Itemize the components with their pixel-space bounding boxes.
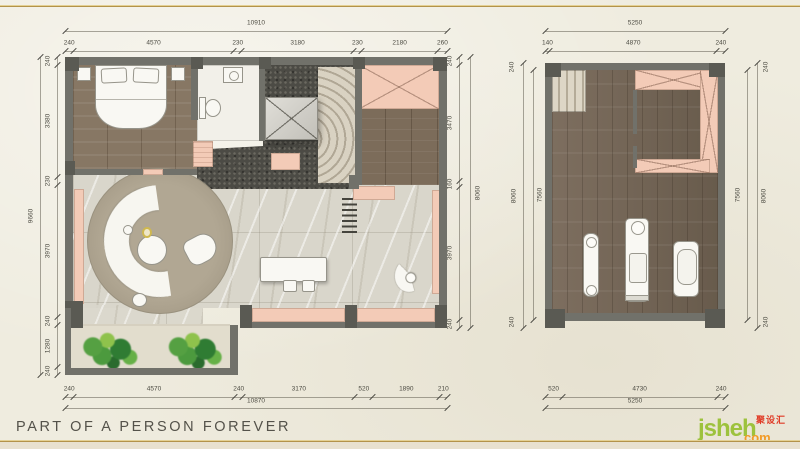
column-b2 (345, 305, 357, 328)
dim-tick (744, 67, 750, 73)
garden-wall-left (65, 308, 71, 375)
wall-bedroom-bottom-a (73, 169, 143, 175)
dim-tick (54, 182, 60, 188)
dim-tick (542, 48, 548, 54)
dim-tick (231, 394, 237, 400)
loft-closet-wall-b (633, 146, 637, 168)
loft-wall-bottom (563, 313, 707, 321)
dim-label: 240 (447, 56, 454, 67)
gold-rule-top (0, 5, 800, 7)
gym-bench-knob-bottom (586, 285, 597, 296)
skylight-shaft (265, 97, 318, 140)
dim-tick (62, 48, 68, 54)
decor-ball (123, 225, 133, 235)
nightstand-left (77, 67, 91, 81)
loft-floor-plan (545, 63, 725, 328)
dim-tick (722, 48, 728, 54)
dim-label: 240 (45, 366, 52, 377)
dim-tick (54, 372, 60, 378)
dim-label: 4870 (626, 40, 640, 47)
garden-threshold (71, 324, 230, 326)
loft-column-bl (545, 309, 565, 328)
floorplan-sheet: 1091024045702303180230218026024045702403… (0, 0, 800, 449)
dim-tick (62, 405, 68, 411)
garden-wall-bottom (65, 368, 238, 375)
dim-tick (722, 28, 728, 34)
loft-wall-right (718, 63, 725, 321)
wall-bottom (240, 322, 447, 328)
dining-chair-left (283, 280, 297, 292)
dim-label: 240 (233, 386, 244, 393)
dim-label: 230 (232, 40, 243, 47)
dim-label: 5250 (628, 20, 642, 27)
dim-label: 240 (64, 386, 75, 393)
dim-tick (467, 54, 473, 60)
dim-label: 3180 (290, 40, 304, 47)
dim-tick (444, 28, 450, 34)
dim-tick (559, 394, 565, 400)
dim-label: 140 (542, 40, 553, 47)
loft-closet-wall-a (633, 90, 637, 134)
dim-label: 5250 (628, 398, 642, 405)
dim-label: 240 (447, 319, 454, 330)
dim-label: 240 (509, 317, 516, 328)
sink-basin (229, 71, 239, 81)
gym-machine-headrest (631, 221, 645, 235)
side-table-gold (142, 227, 152, 238)
dim-tick (456, 184, 462, 190)
dim-tick (542, 394, 548, 400)
dim-label: 2180 (392, 40, 406, 47)
dim-tick (54, 62, 60, 68)
dim-label: 520 (358, 386, 369, 393)
nightstand-right (171, 67, 185, 81)
dim-tick (70, 48, 76, 54)
dim-tick (370, 394, 376, 400)
dim-tick (444, 405, 450, 411)
dim-label: 3970 (447, 246, 454, 260)
dim-label: 1890 (399, 386, 413, 393)
toilet-bowl (205, 99, 221, 117)
main-floor-plan (65, 57, 447, 375)
dim-line (65, 51, 447, 52)
wall-left (65, 57, 73, 308)
curved-staircase (318, 67, 357, 183)
wall-stub-ladder (349, 175, 359, 189)
dim-tick (456, 178, 462, 184)
bottom-cabinet-left (252, 308, 345, 322)
loft-ladder-steps (342, 198, 357, 233)
column-tr (433, 57, 447, 71)
dining-table (260, 257, 327, 282)
footer-slogan: PART OF A PERSON FOREVER (16, 419, 291, 435)
blanket-fold-line (96, 99, 166, 100)
dim-label: 3380 (45, 114, 52, 128)
wall-top (65, 57, 447, 65)
dim-tick (456, 325, 462, 331)
dim-tick (542, 28, 548, 34)
dim-tick (54, 313, 60, 319)
dim-line (65, 408, 447, 409)
dim-label: 1280 (45, 339, 52, 353)
dim-label: 260 (437, 40, 448, 47)
dim-tick (456, 62, 462, 68)
wall-bath-stair (259, 65, 265, 141)
dim-label: 8060 (475, 185, 482, 199)
dim-label: 160 (447, 179, 454, 190)
wall-stair-study (355, 65, 362, 185)
dim-tick (37, 372, 43, 378)
bottom-cabinet-right (357, 308, 435, 322)
dim-tick (54, 174, 60, 180)
column-br (435, 305, 447, 328)
dim-line (757, 63, 758, 328)
round-coffee-table (137, 235, 167, 265)
skylight-cross-lines (266, 98, 317, 139)
dim-tick (54, 364, 60, 370)
dim-tick (54, 321, 60, 327)
gym-recliner-pad (677, 249, 697, 285)
dim-line (470, 57, 471, 328)
column-tl (65, 57, 79, 71)
left-wall-cabinet (74, 189, 84, 304)
dim-label: 230 (352, 40, 363, 47)
dim-tick (722, 394, 728, 400)
dim-line (545, 31, 725, 32)
dim-label: 7560 (537, 188, 544, 202)
pouf (132, 293, 147, 307)
loft-column-br (705, 309, 725, 328)
wall-bedroom-bottom-b (163, 169, 197, 175)
dim-line (459, 57, 460, 328)
wall-right (439, 57, 447, 328)
dim-tick (520, 60, 526, 66)
loft-column-tr (709, 63, 725, 77)
dim-tick (542, 405, 548, 411)
dim-label: 9660 (28, 209, 35, 223)
dim-tick (754, 60, 760, 66)
study-wardrobe (359, 65, 439, 109)
dining-chair-right (302, 280, 315, 292)
dim-label: 3470 (447, 116, 454, 130)
dim-label: 7560 (735, 188, 742, 202)
dim-tick (444, 394, 450, 400)
dim-label: 240 (45, 315, 52, 326)
dim-label: 4570 (146, 40, 160, 47)
footer-strip (0, 442, 800, 449)
dim-tick (456, 317, 462, 323)
loft-wardrobe-bottom (635, 159, 710, 173)
dim-label: 240 (45, 56, 52, 67)
dim-line (545, 51, 725, 52)
logo-chinese-text: 聚设汇 (756, 413, 786, 426)
dim-label: 8060 (511, 188, 518, 202)
dim-tick (547, 48, 553, 54)
dim-label: 3970 (45, 243, 52, 257)
pillow-left (101, 67, 128, 83)
dim-line (533, 70, 534, 320)
column-t1 (191, 57, 203, 69)
dim-label: 230 (45, 176, 52, 187)
dim-tick (456, 54, 462, 60)
dim-label: 4730 (632, 386, 646, 393)
dim-line (545, 397, 725, 398)
dim-tick (714, 394, 720, 400)
dim-line (40, 57, 41, 375)
column-b1 (240, 305, 252, 328)
dim-tick (350, 48, 356, 54)
column-t3 (353, 57, 365, 69)
dim-tick (37, 54, 43, 60)
dim-tick (358, 48, 364, 54)
dim-tick (520, 325, 526, 331)
dim-tick (351, 394, 357, 400)
hall-cabinet (353, 186, 395, 200)
dim-tick (530, 317, 536, 323)
dim-label: 10910 (247, 20, 265, 27)
dim-label: 8060 (761, 188, 768, 202)
dim-label: 240 (763, 62, 770, 73)
dim-tick (754, 325, 760, 331)
dim-label: 10870 (247, 398, 265, 405)
wall-bedroom-bath (191, 65, 198, 120)
dim-label: 240 (509, 62, 516, 73)
dim-tick (70, 394, 76, 400)
dim-tick (62, 394, 68, 400)
dim-label: 240 (716, 386, 727, 393)
dim-label: 3170 (292, 386, 306, 393)
garden-plants-left (77, 330, 143, 370)
dim-label: 520 (548, 386, 559, 393)
loft-column-tl (545, 63, 561, 77)
loft-wall-top (545, 63, 725, 70)
column-left-mid (65, 161, 75, 175)
dim-tick (444, 48, 450, 54)
shelf-cabinet-striped (193, 141, 213, 167)
dim-tick (744, 317, 750, 323)
loft-wardrobe-right (700, 70, 718, 173)
dim-label: 4570 (147, 386, 161, 393)
dim-label: 210 (438, 386, 449, 393)
dim-line (57, 57, 58, 375)
dim-line (747, 70, 748, 320)
dim-tick (530, 67, 536, 73)
dim-tick (467, 325, 473, 331)
dim-line (65, 31, 447, 32)
dim-tick (714, 48, 720, 54)
loft-wall-left (545, 63, 552, 321)
dim-tick (240, 394, 246, 400)
column-t2 (259, 57, 271, 69)
pillow-right (133, 67, 160, 83)
gym-machine-base (625, 295, 649, 301)
dim-line (545, 408, 725, 409)
gym-bench-knob-top (586, 237, 597, 248)
dim-tick (62, 28, 68, 34)
dim-tick (436, 394, 442, 400)
dim-tick (435, 48, 441, 54)
dim-tick (239, 48, 245, 54)
dim-label: 240 (715, 40, 726, 47)
dim-label: 240 (64, 40, 75, 47)
bedroom-door-slider (143, 169, 163, 175)
dim-tick (54, 54, 60, 60)
landing-cabinet (271, 153, 300, 170)
dim-line (523, 63, 524, 328)
gym-machine-seat (629, 253, 647, 283)
dim-label: 240 (763, 317, 770, 328)
garden-wall-right (230, 325, 238, 375)
dim-line (65, 397, 447, 398)
garden-plants-right (163, 330, 227, 370)
dim-tick (231, 48, 237, 54)
